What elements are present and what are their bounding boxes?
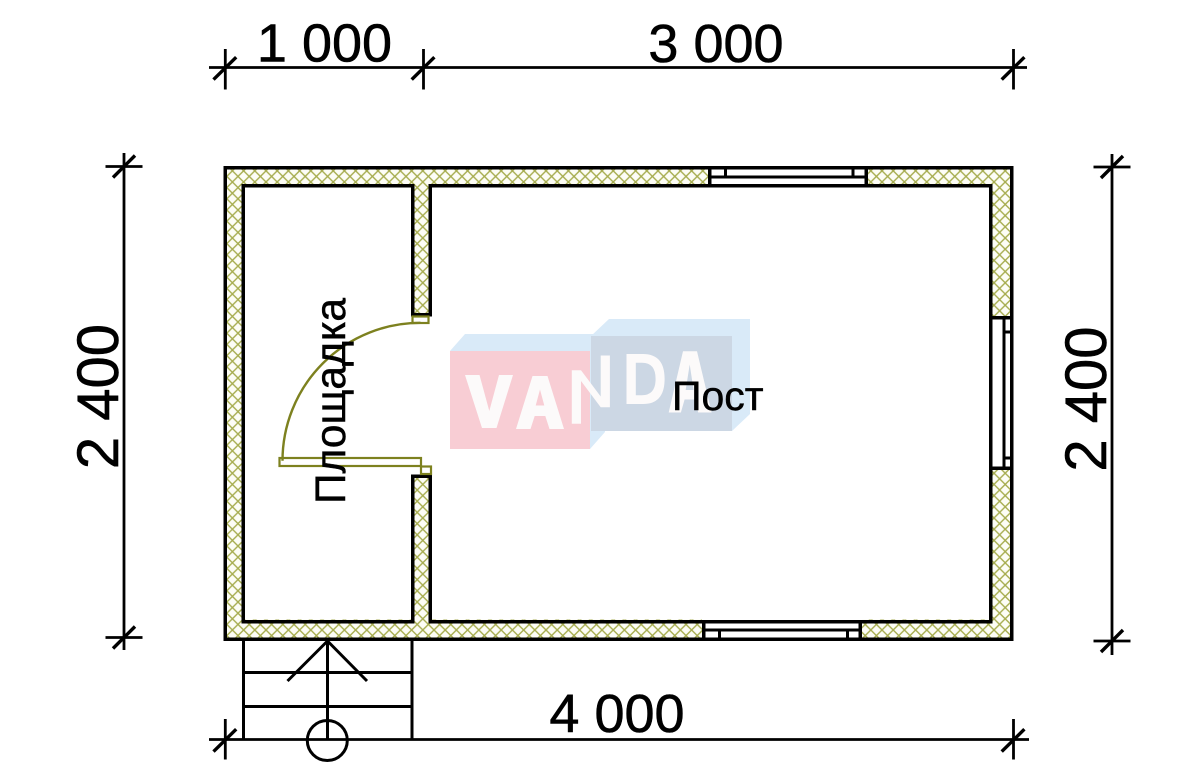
svg-text:3 000: 3 000 [648, 14, 783, 74]
svg-text:Пост: Пост [672, 373, 764, 419]
svg-text:2 400: 2 400 [1054, 326, 1119, 471]
svg-text:1 000: 1 000 [257, 14, 392, 74]
svg-text:2 400: 2 400 [66, 324, 131, 469]
svg-text:4 000: 4 000 [549, 684, 684, 744]
svg-text:Площадка: Площадка [308, 298, 355, 504]
